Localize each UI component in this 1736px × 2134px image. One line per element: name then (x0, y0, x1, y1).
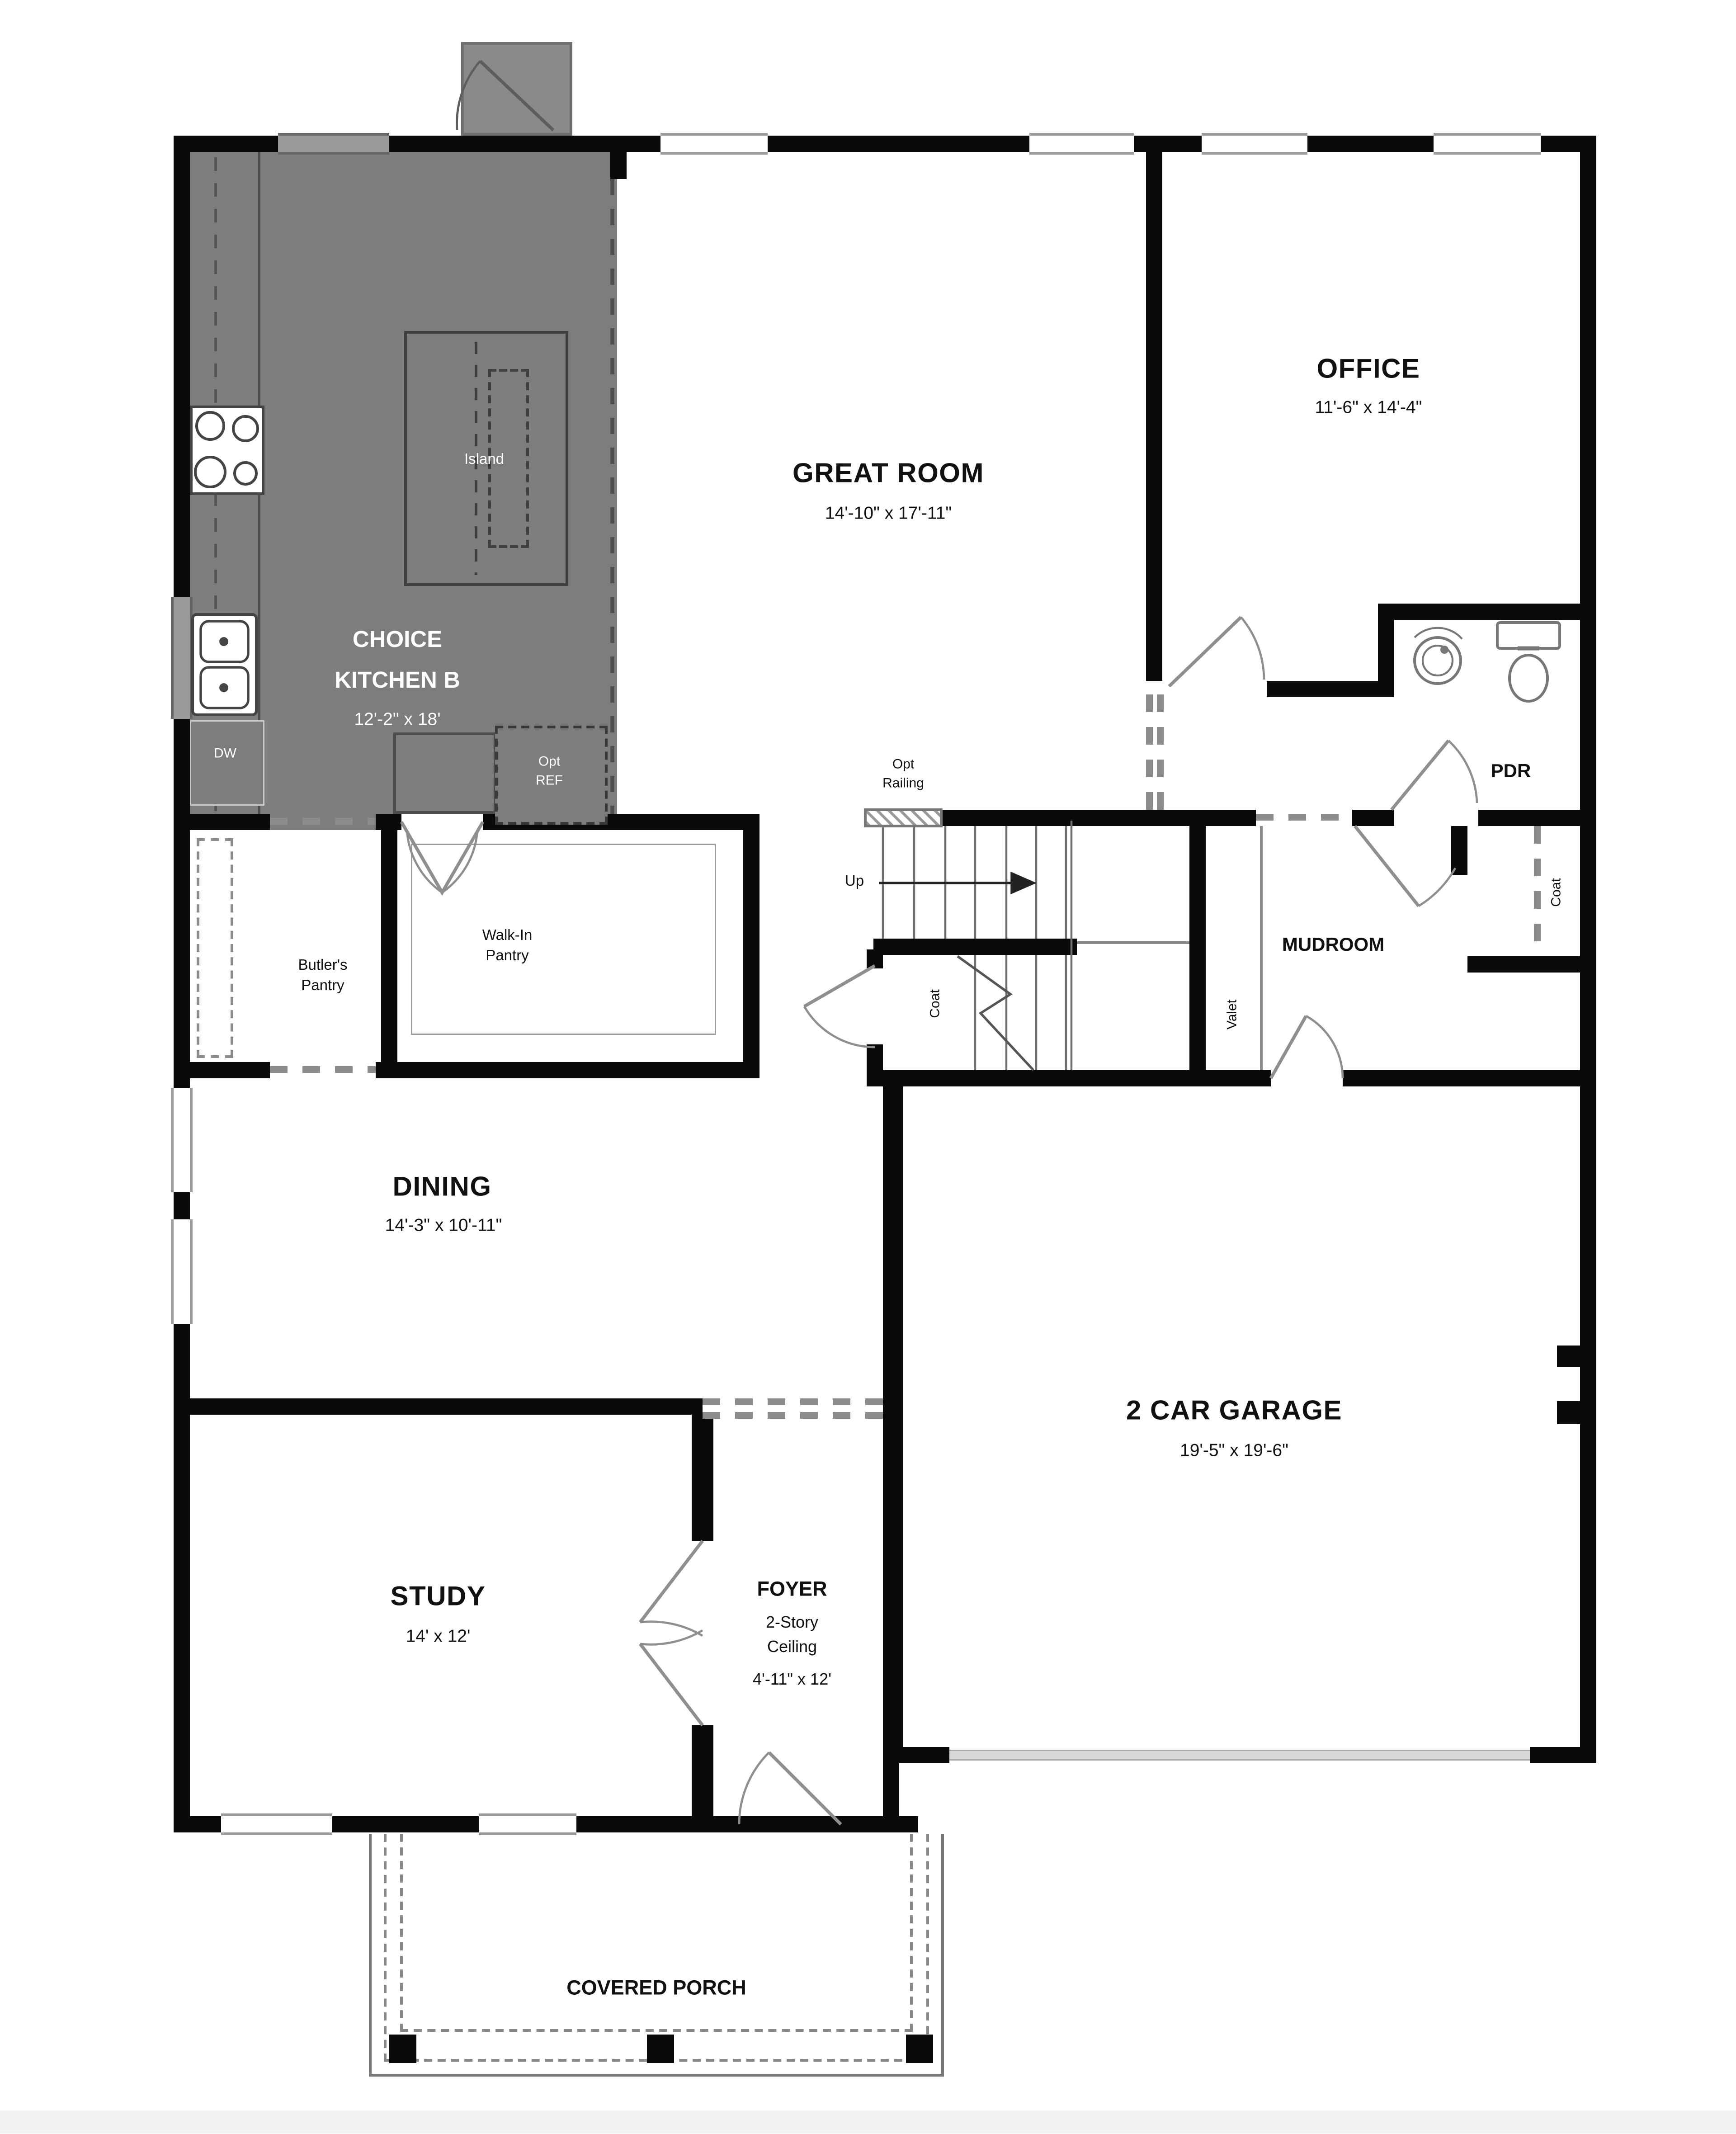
room-dims-garage: 19'-5" x 19'-6" (1180, 1440, 1288, 1460)
wall (1343, 1070, 1596, 1086)
cased-opening (270, 814, 376, 830)
pantry-shelf (411, 844, 716, 1035)
chimney-bump (461, 42, 572, 136)
wall (190, 1062, 270, 1078)
pdr-sink (1415, 628, 1462, 684)
room-label-walkin-pantry-2: Pantry (486, 948, 528, 964)
wall (1451, 826, 1467, 875)
cooktop (190, 406, 264, 495)
floor-plan: CHOICE KITCHEN B 12'-2" x 18' GREAT ROOM… (0, 0, 1736, 2134)
window (1202, 133, 1307, 155)
room-dims-dining: 14'-3" x 10'-11" (385, 1215, 502, 1235)
room-label-mudroom: MUDROOM (1282, 933, 1384, 955)
wall (1352, 810, 1394, 826)
wall (883, 1086, 903, 1747)
wall (692, 1725, 713, 1832)
garage-wall-stub (1557, 1401, 1580, 1424)
room-label-great-room: GREAT ROOM (793, 459, 984, 491)
room-label-foyer: FOYER (757, 1578, 827, 1601)
cased-opening (1146, 694, 1153, 810)
wall (376, 814, 401, 830)
cased-opening (703, 1412, 883, 1419)
wall (867, 1070, 1271, 1086)
valet-label: Valet (1226, 1000, 1241, 1029)
porch-post (389, 2035, 416, 2063)
wall (1467, 956, 1596, 973)
cased-opening (1256, 810, 1352, 826)
wall (873, 939, 1077, 955)
window (1434, 133, 1541, 155)
room-label-kitchen-2: KITCHEN B (335, 667, 460, 694)
window (479, 1813, 576, 1835)
room-label-garage: 2 CAR GARAGE (1126, 1397, 1342, 1428)
room-dims-foyer: 4'-11" x 12' (753, 1670, 831, 1689)
window (660, 133, 768, 155)
wall (610, 152, 627, 179)
wall (867, 949, 883, 968)
window (221, 1813, 332, 1835)
stair-break-line (958, 956, 1033, 1070)
wall (1189, 826, 1206, 1070)
opt-railing-label: Opt (892, 758, 914, 773)
porch-dashed (400, 1834, 913, 2032)
opt-railing-label-2: Railing (882, 777, 924, 792)
kitchen-sink (191, 613, 258, 716)
opt-railing (864, 808, 943, 827)
room-dims-kitchen: 12'-2" x 18' (354, 709, 440, 729)
room-label-porch: COVERED PORCH (566, 1977, 746, 2000)
wall (943, 810, 1256, 826)
wall (1478, 810, 1596, 826)
room-label-dining: DINING (393, 1173, 492, 1204)
pdr-toilet (1497, 623, 1560, 701)
garage-wall-stub (1557, 1346, 1580, 1367)
coat-under-stairs-label: Coat (929, 989, 943, 1018)
room-label-butlers-pantry: Butler's (298, 958, 347, 974)
wall (1580, 136, 1596, 1763)
room-label-study: STUDY (391, 1582, 486, 1614)
opt-ref-label-2: REF (536, 774, 563, 789)
room-label-walkin-pantry: Walk-In (482, 928, 533, 944)
opt-ref-label: Opt (538, 755, 560, 770)
room-dims-office: 11'-6" x 14'-4" (1315, 397, 1422, 417)
island-label: Island (464, 452, 504, 468)
window (1029, 133, 1134, 155)
dishwasher-label: DW (214, 747, 236, 762)
wall (1146, 152, 1162, 681)
garage-door (949, 1750, 1530, 1761)
room-label-kitchen: CHOICE (353, 627, 442, 654)
closet-door-track (1534, 826, 1541, 956)
wall (381, 830, 397, 1062)
room-dims-study: 14' x 12' (406, 1626, 471, 1646)
wall (174, 1398, 703, 1415)
room-dims-great-room: 14'-10" x 17'-11" (825, 503, 952, 523)
wall (867, 1044, 883, 1070)
wall (883, 1747, 899, 1832)
wall (174, 136, 190, 1832)
wall (1378, 604, 1596, 620)
wall (692, 1415, 713, 1541)
window (171, 1219, 193, 1324)
coat-closet-label: Coat (1550, 878, 1565, 906)
porch-post (906, 2035, 933, 2063)
room-label-foyer-2: 2-Story (766, 1613, 818, 1632)
cased-opening (270, 1062, 376, 1078)
butlers-cabinet-dashed (197, 838, 233, 1058)
wall (743, 814, 759, 1078)
room-label-foyer-3: Ceiling (767, 1637, 817, 1656)
window (278, 133, 389, 155)
wall (190, 814, 270, 830)
bottom-strip (0, 2110, 1736, 2134)
cased-opening (1157, 694, 1164, 810)
room-label-pdr: PDR (1491, 760, 1531, 781)
window (171, 597, 193, 719)
cased-opening (703, 1398, 883, 1405)
wall (1267, 681, 1394, 697)
window (171, 1088, 193, 1192)
dishwasher (190, 720, 264, 806)
porch-post (647, 2035, 674, 2063)
counter (393, 732, 496, 814)
up-arrow (879, 873, 1033, 892)
up-label: Up (845, 873, 864, 890)
wall (376, 1062, 759, 1078)
kitchen-floor-break (610, 179, 614, 814)
room-label-butlers-pantry-2: Pantry (301, 978, 344, 994)
room-label-office: OFFICE (1316, 355, 1420, 386)
